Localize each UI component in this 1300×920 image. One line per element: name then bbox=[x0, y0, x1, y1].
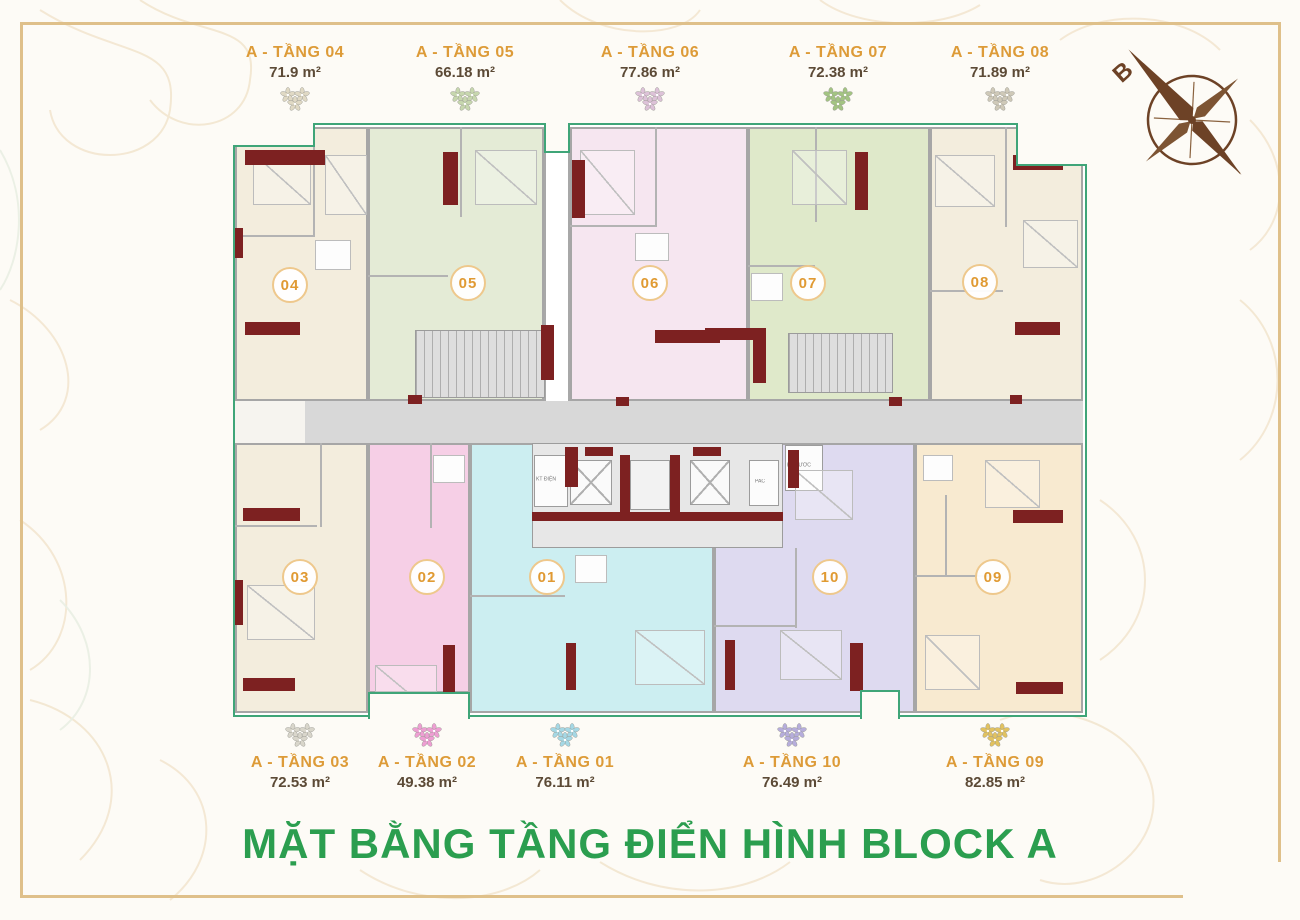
shear-wall-accent bbox=[855, 152, 868, 210]
shear-wall-accent bbox=[532, 512, 783, 521]
bathroom-fixture bbox=[751, 273, 783, 301]
unit-area-text: 76.49 m² bbox=[762, 774, 822, 791]
unit-name: A - TẦNG 05 bbox=[416, 44, 514, 62]
bathroom-fixture bbox=[315, 240, 351, 270]
shear-wall-accent bbox=[243, 678, 295, 691]
bed-furniture bbox=[985, 460, 1040, 508]
boundary-notch-top-right bbox=[1016, 123, 1087, 166]
shear-wall-accent bbox=[620, 455, 630, 513]
bed-furniture bbox=[325, 155, 367, 215]
shear-wall-accent bbox=[693, 447, 721, 456]
unit-area-text: 72.38 m² bbox=[808, 64, 868, 81]
unit-area-text: 77.86 m² bbox=[620, 64, 680, 81]
unit-label-10: A - TẦNG 10 76.49 m² bbox=[707, 722, 877, 791]
corridor-vestibule bbox=[235, 401, 306, 443]
unit-name: A - TẦNG 09 bbox=[946, 754, 1044, 772]
compass-north-label: B bbox=[1108, 57, 1139, 89]
unit-area-text: 71.9 m² bbox=[269, 64, 321, 81]
unit-label-08: A - TẦNG 08 71.89 m² bbox=[915, 44, 1085, 113]
unit-area-text: 82.85 m² bbox=[965, 774, 1025, 791]
shear-wall-accent bbox=[753, 328, 766, 383]
shear-wall-accent bbox=[408, 395, 422, 404]
unit-badge-04: 04 bbox=[272, 267, 308, 303]
bed-furniture bbox=[580, 150, 635, 215]
shear-wall-accent bbox=[245, 322, 300, 335]
shear-wall-accent bbox=[585, 447, 613, 456]
boundary-notch-gap bbox=[544, 123, 570, 153]
shear-wall-accent bbox=[1015, 322, 1060, 335]
unit-name: A - TẦNG 08 bbox=[951, 44, 1049, 62]
unit-badge-08: 08 bbox=[962, 264, 998, 300]
bathroom-fixture bbox=[923, 455, 953, 481]
interior-wall bbox=[655, 127, 657, 227]
page: { "title": "MẶT BẰNG TẦNG ĐIỂN HÌNH BLOC… bbox=[0, 0, 1300, 920]
corridor bbox=[305, 401, 1083, 443]
shear-wall-accent bbox=[245, 150, 325, 165]
bed-furniture bbox=[780, 630, 842, 680]
shear-wall-accent bbox=[1013, 510, 1063, 523]
shear-wall-accent bbox=[616, 397, 629, 406]
orchid-flower-icon bbox=[634, 86, 666, 113]
unit-label-05: A - TẦNG 05 66.18 m² bbox=[380, 44, 550, 113]
floor-plan: KT ĐIỆN PAC KT NƯỚC 04 05 06 07 08 03 02… bbox=[233, 123, 1087, 717]
unit-name: A - TẦNG 04 bbox=[246, 44, 344, 62]
unit-name: A - TẦNG 03 bbox=[251, 754, 349, 772]
unit-label-04: A - TẦNG 04 71.9 m² bbox=[210, 44, 380, 113]
unit-area-text: 49.38 m² bbox=[397, 774, 457, 791]
pac-room-label: PAC bbox=[755, 479, 765, 484]
unit-badge-03: 03 bbox=[282, 559, 318, 595]
unit-name: A - TẦNG 10 bbox=[743, 754, 841, 772]
unit-area-text: 72.53 m² bbox=[270, 774, 330, 791]
unit-area-text: 71.89 m² bbox=[970, 64, 1030, 81]
unit-area-text: 76.11 m² bbox=[535, 774, 594, 791]
interior-wall bbox=[1005, 127, 1007, 227]
unit-label-07: A - TẦNG 07 72.38 m² bbox=[753, 44, 923, 113]
bed-furniture bbox=[935, 155, 995, 207]
elevator-shaft-middle bbox=[630, 460, 670, 510]
unit-name: A - TẦNG 02 bbox=[378, 754, 476, 772]
interior-wall bbox=[320, 443, 322, 527]
unit-badge-06: 06 bbox=[632, 265, 668, 301]
shear-wall-accent bbox=[788, 450, 799, 488]
interior-wall bbox=[714, 625, 795, 627]
interior-wall bbox=[460, 127, 462, 217]
frame-erase-patch bbox=[1183, 862, 1300, 920]
bed-furniture bbox=[925, 635, 980, 690]
shear-wall-accent bbox=[850, 643, 863, 691]
interior-wall bbox=[235, 235, 313, 237]
unit-badge-02: 02 bbox=[409, 559, 445, 595]
shear-wall-accent bbox=[566, 643, 576, 690]
shear-wall-accent bbox=[443, 152, 458, 205]
orchid-flower-icon bbox=[822, 86, 854, 113]
unit-badge-09: 09 bbox=[975, 559, 1011, 595]
bed-furniture bbox=[795, 470, 853, 520]
unit-name: A - TẦNG 06 bbox=[601, 44, 699, 62]
page-title: MẶT BẰNG TẦNG ĐIỂN HÌNH BLOCK A bbox=[0, 820, 1300, 868]
interior-wall bbox=[795, 548, 797, 628]
bathroom-fixture bbox=[433, 455, 465, 483]
boundary-notch-bottom-10 bbox=[860, 690, 900, 719]
unit-badge-07: 07 bbox=[790, 265, 826, 301]
orchid-flower-icon bbox=[776, 722, 808, 749]
orchid-flower-icon bbox=[979, 722, 1011, 749]
shear-wall-accent bbox=[572, 160, 585, 218]
orchid-flower-icon bbox=[984, 86, 1016, 113]
interior-wall bbox=[945, 495, 947, 575]
interior-wall bbox=[368, 275, 448, 277]
boundary-notch-top-left bbox=[233, 123, 315, 147]
bed-furniture bbox=[475, 150, 537, 205]
orchid-flower-icon bbox=[284, 722, 316, 749]
staircase-right bbox=[788, 333, 893, 393]
orchid-flower-icon bbox=[411, 722, 443, 749]
shear-wall-accent bbox=[541, 325, 554, 380]
bed-furniture bbox=[1023, 220, 1078, 268]
shear-wall-accent bbox=[725, 640, 735, 690]
bed-furniture bbox=[635, 630, 705, 685]
unit-area-text: 66.18 m² bbox=[435, 64, 495, 81]
shear-wall-accent bbox=[889, 397, 902, 406]
unit-name: A - TẦNG 07 bbox=[789, 44, 887, 62]
interior-wall bbox=[570, 225, 655, 227]
bathroom-fixture bbox=[635, 233, 669, 261]
compass-icon: B bbox=[1088, 26, 1288, 216]
orchid-flower-icon bbox=[549, 722, 581, 749]
shear-wall-accent bbox=[565, 447, 578, 487]
interior-wall bbox=[470, 595, 565, 597]
electrical-room-label: KT ĐIỆN bbox=[536, 477, 556, 482]
shear-wall-accent bbox=[235, 580, 243, 625]
unit-badge-05: 05 bbox=[450, 265, 486, 301]
unit-label-09: A - TẦNG 09 82.85 m² bbox=[910, 722, 1080, 791]
unit-badge-10: 10 bbox=[812, 559, 848, 595]
interior-wall bbox=[235, 525, 317, 527]
shear-wall-accent bbox=[670, 455, 680, 513]
shear-wall-accent bbox=[1010, 395, 1022, 404]
boundary-notch-bottom-02 bbox=[368, 692, 470, 719]
orchid-flower-icon bbox=[279, 86, 311, 113]
shear-wall-accent bbox=[243, 508, 300, 521]
bed-furniture bbox=[792, 150, 847, 205]
orchid-flower-icon bbox=[449, 86, 481, 113]
unit-label-06: A - TẦNG 06 77.86 m² bbox=[565, 44, 735, 113]
shear-wall-accent bbox=[235, 228, 243, 258]
bathroom-fixture bbox=[575, 555, 607, 583]
unit-label-01: A - TẦNG 01 76.11 m² bbox=[480, 722, 650, 791]
unit-name: A - TẦNG 01 bbox=[516, 754, 614, 772]
unit-badge-01: 01 bbox=[529, 559, 565, 595]
staircase-left bbox=[415, 330, 545, 398]
shear-wall-accent bbox=[1016, 682, 1063, 694]
elevator-right bbox=[690, 460, 730, 505]
interior-wall bbox=[430, 443, 432, 528]
